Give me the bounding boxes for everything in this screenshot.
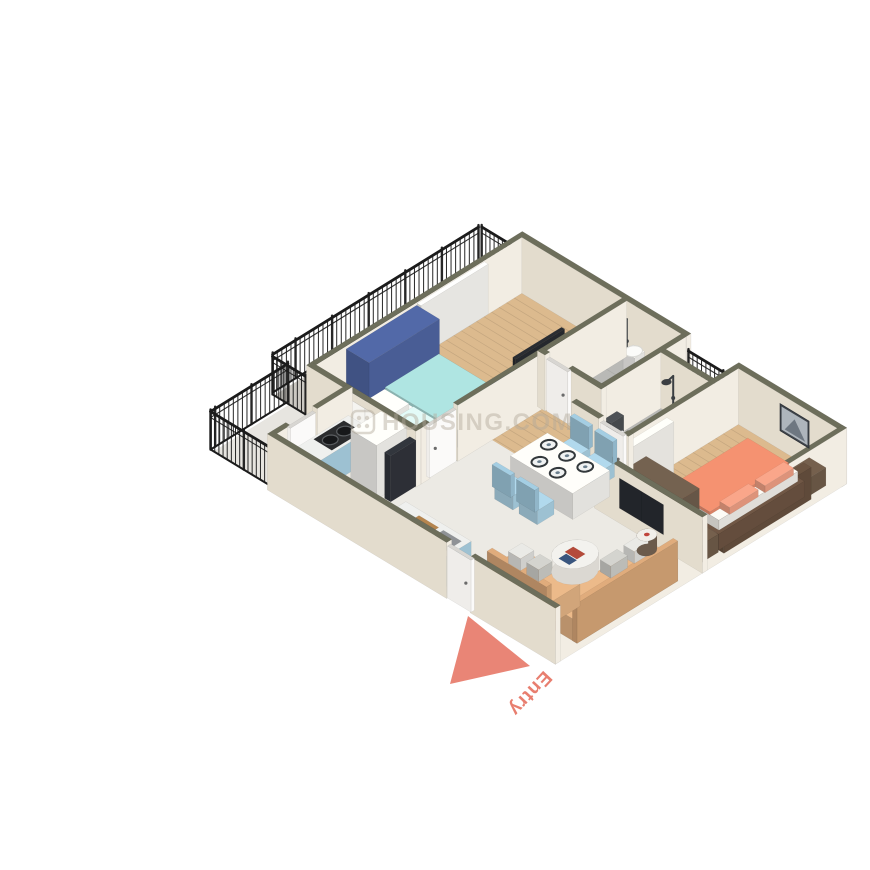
sink1-basin — [625, 346, 643, 357]
floorplan-canvas: EntryHOUSING.COM — [0, 0, 870, 870]
plate-4 — [532, 457, 548, 467]
plate-5 — [550, 468, 566, 478]
plate-1 — [541, 440, 557, 450]
stove-burner-b — [322, 435, 338, 445]
plate-3 — [577, 462, 593, 472]
watermark-text: HOUSING.COM — [382, 409, 573, 436]
stove-burner-a — [337, 426, 353, 436]
coffee-table — [551, 540, 599, 585]
entry-label: Entry — [504, 667, 556, 721]
entry-label-text: Entry — [504, 667, 556, 721]
plate-2 — [559, 451, 575, 461]
floorplan-image: EntryHOUSING.COM — [0, 0, 870, 870]
watermark: HOUSING.COM — [352, 409, 573, 436]
